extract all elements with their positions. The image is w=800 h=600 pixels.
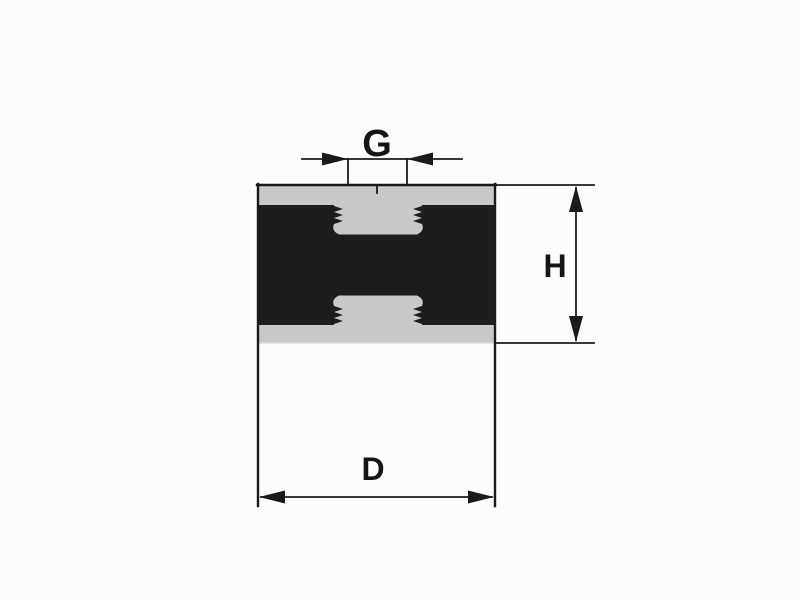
bottom-threaded-hole: [333, 296, 423, 328]
g-arrowhead-right: [407, 153, 433, 166]
g-arrowhead-left: [322, 153, 348, 166]
h-arrowhead-bottom: [569, 316, 583, 342]
dimension-g: G: [302, 123, 462, 183]
top-threaded-hole: [333, 203, 423, 235]
h-arrowhead-top: [569, 186, 583, 212]
dimension-label-d: D: [361, 451, 384, 487]
dimension-label-g: G: [362, 123, 392, 165]
d-arrowhead-right: [468, 491, 494, 504]
bottom-metal-plate: [258, 325, 495, 343]
dimension-label-h: H: [543, 248, 566, 284]
d-arrowhead-left: [259, 491, 285, 504]
rubber-mount-technical-drawing: G H D: [0, 0, 800, 600]
dimension-h: H: [497, 185, 594, 343]
mount-cross-section: [257, 185, 496, 343]
diagram-canvas: G H D: [0, 0, 800, 600]
